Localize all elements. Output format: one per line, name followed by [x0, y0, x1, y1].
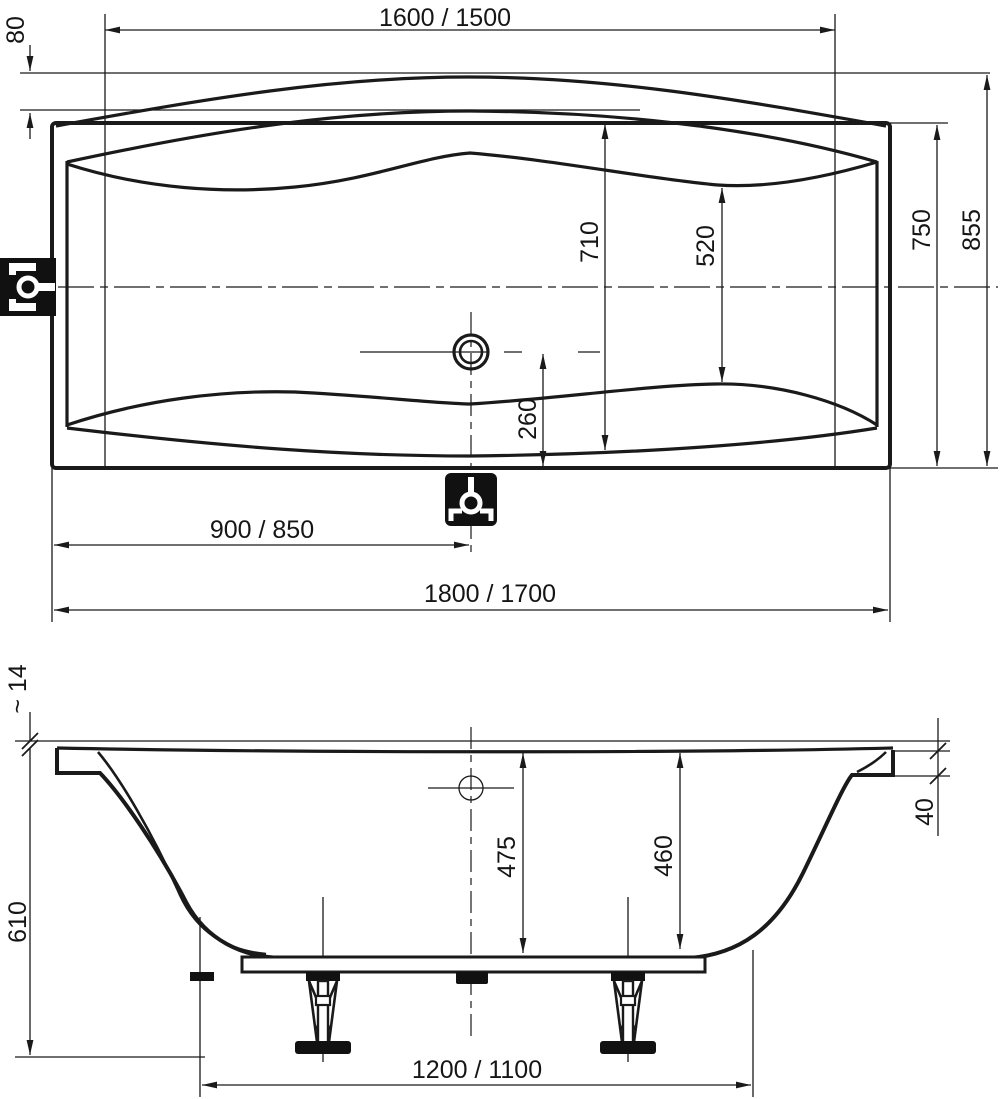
left-clip: [190, 972, 214, 981]
dim-label: 460: [650, 835, 678, 877]
bathtub-side-outline: [57, 748, 893, 958]
tub-left-inner-surface: [98, 752, 266, 954]
rim-outer-wave: [56, 77, 886, 126]
overflow-fitting-icon: [0, 258, 56, 316]
tub-right-rim-inner: [857, 752, 886, 772]
base-plate: [242, 957, 705, 972]
drawing-sheet: 1600 / 1500 80 750 855 710 520 260: [0, 0, 1000, 1099]
dim-label: 260: [514, 398, 542, 440]
dim-label: 40: [911, 798, 939, 826]
rim-top-line: [57, 748, 893, 752]
dim-label: 520: [692, 225, 720, 267]
dim-depth-at-drain: 475: [493, 753, 523, 953]
bathtub-technical-drawing: 1600 / 1500 80 750 855 710 520 260: [0, 0, 1000, 1099]
dim-depth-at-end: 460: [650, 753, 680, 949]
dim-drain-offset: 260: [514, 354, 543, 466]
dim-support-span: 1200 / 1100: [202, 1056, 751, 1085]
dim-inner-length: 1600 / 1500: [105, 4, 835, 32]
dim-label: 900 / 850: [210, 516, 314, 544]
tub-left-wall: [57, 748, 282, 958]
dim-label: 1600 / 1500: [379, 4, 511, 32]
extension-lines-side: [15, 741, 950, 1097]
basin-bottom-edge-wave: [67, 384, 877, 425]
support-leg-left: [295, 972, 351, 1054]
dim-label: 1800 / 1700: [424, 580, 556, 608]
dim-rim-band: 80: [2, 16, 30, 139]
dim-label: 610: [4, 901, 32, 943]
support-leg-right: [600, 972, 656, 1054]
dim-overall-height: 610: [4, 748, 32, 1055]
dim-rim-thickness: ~ 14: [4, 664, 38, 756]
basin-top-edge-wave: [67, 153, 877, 190]
dim-label: 1200 / 1100: [412, 1056, 542, 1084]
dim-label: 855: [958, 209, 986, 251]
drain-fitting-icon: [445, 473, 497, 526]
leg-foot: [600, 1041, 656, 1054]
top-view: 1600 / 1500 80 750 855 710 520 260: [0, 4, 998, 622]
center-bracket: [456, 972, 488, 984]
dim-label: 80: [2, 16, 30, 44]
dim-label: 475: [493, 836, 521, 878]
rim-bottom-wave: [67, 428, 877, 456]
dim-inner-width: 750: [908, 125, 937, 466]
dim-overall-width: 855: [958, 75, 987, 466]
dim-rim-height: 40: [911, 718, 946, 836]
dim-drain-position: 900 / 850: [54, 516, 469, 545]
tub-outer-rect: [52, 123, 890, 468]
dim-label: 750: [908, 209, 936, 251]
dim-overall-length: 1800 / 1700: [54, 580, 888, 610]
tub-right-wall: [690, 750, 893, 958]
dim-label: 710: [576, 221, 604, 263]
support-frame: [190, 957, 705, 1054]
dim-basin-width: 520: [692, 188, 722, 382]
dim-label: ~ 14: [4, 664, 32, 713]
leg-foot: [295, 1041, 351, 1054]
side-view: ~ 14 610 475 460 40 1200 / 1100: [4, 664, 950, 1097]
